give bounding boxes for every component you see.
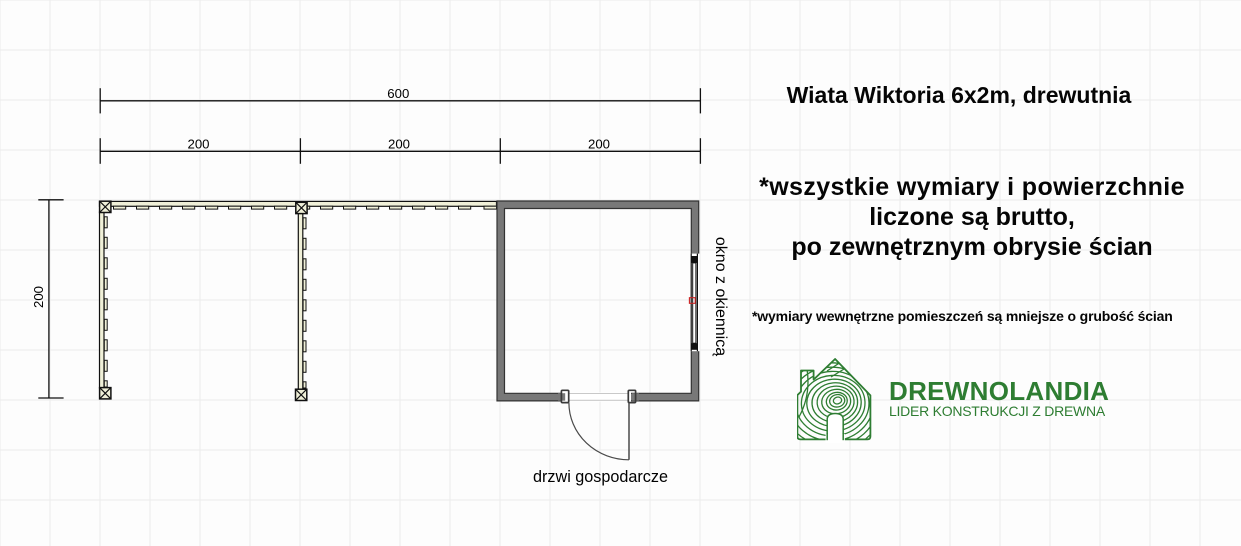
svg-text:200: 200 [31, 286, 46, 308]
svg-text:200: 200 [388, 136, 410, 151]
svg-text:drzwi gospodarcze: drzwi gospodarcze [533, 468, 668, 486]
svg-text:okno z okiennicą: okno z okiennicą [712, 237, 729, 356]
svg-text:200: 200 [588, 136, 610, 151]
svg-text:200: 200 [187, 136, 209, 151]
svg-text:600: 600 [387, 86, 409, 101]
